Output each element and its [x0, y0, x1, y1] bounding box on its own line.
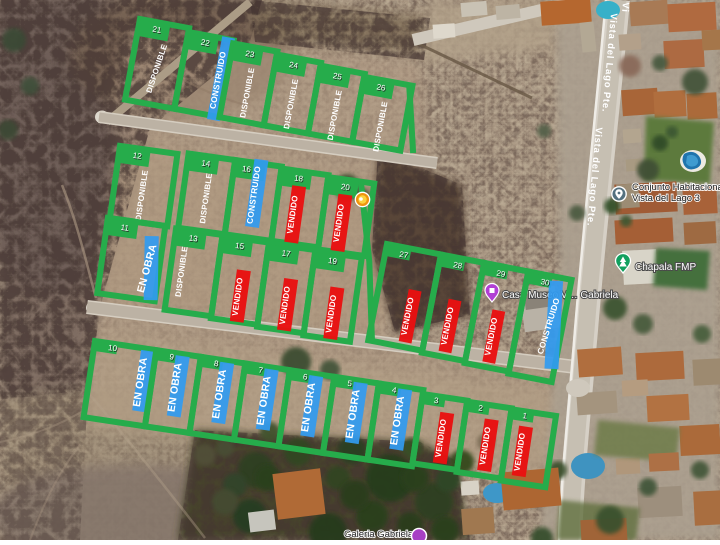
svg-text:16: 16 — [241, 164, 252, 174]
svg-text:Chapala FMP: Chapala FMP — [635, 262, 696, 273]
svg-text:Vi: Vi — [619, 2, 631, 13]
svg-text:12: 12 — [132, 151, 143, 161]
svg-text:13: 13 — [188, 233, 199, 243]
svg-text:14: 14 — [201, 158, 212, 168]
svg-text:Vista del Lago 3: Vista del Lago 3 — [632, 193, 700, 204]
svg-text:18: 18 — [294, 173, 305, 183]
svg-text:17: 17 — [281, 248, 292, 258]
svg-text:20: 20 — [340, 182, 351, 192]
svg-text:Conjunto Habitacional: Conjunto Habitacional — [632, 182, 720, 193]
svg-text:19: 19 — [327, 256, 338, 266]
svg-text:15: 15 — [235, 241, 246, 251]
svg-text:Galeria Gabriela: Galeria Gabriela — [344, 529, 414, 540]
